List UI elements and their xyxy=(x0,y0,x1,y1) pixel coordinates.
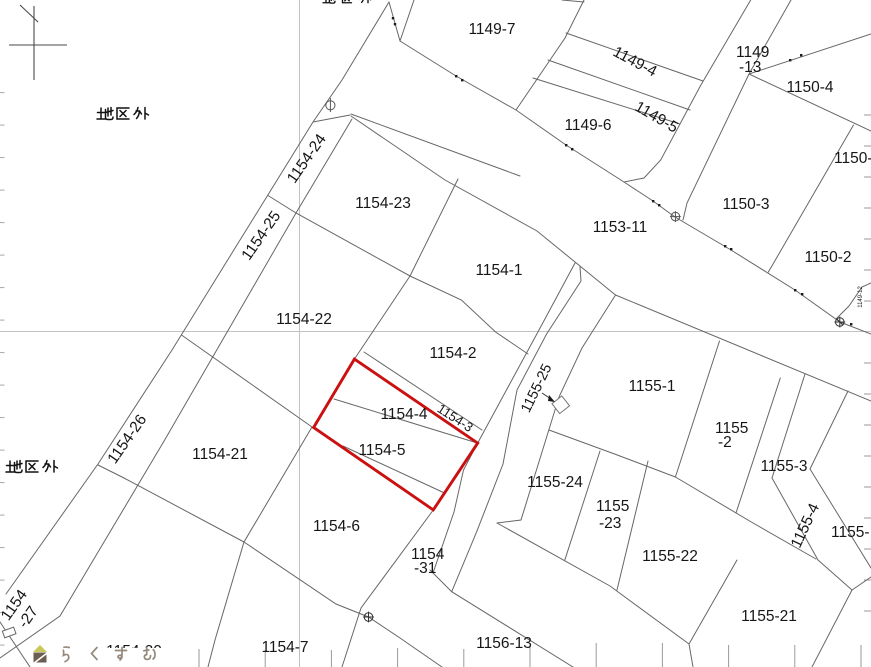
svg-text:1149-12: 1149-12 xyxy=(858,286,864,308)
svg-text:-2: -2 xyxy=(718,434,732,451)
svg-text:1150-3: 1150-3 xyxy=(722,196,769,213)
svg-text:1155-3: 1155-3 xyxy=(760,458,807,475)
svg-text:1155-21: 1155-21 xyxy=(741,608,797,625)
svg-text:1150-: 1150- xyxy=(834,150,871,167)
svg-text:1154-7: 1154-7 xyxy=(261,639,308,656)
svg-text:1154-4: 1154-4 xyxy=(380,406,427,423)
svg-text:-23: -23 xyxy=(599,515,621,532)
svg-text:1155-: 1155- xyxy=(831,524,870,541)
svg-text:1149-6: 1149-6 xyxy=(564,117,611,134)
svg-text:1149-7: 1149-7 xyxy=(468,21,515,38)
svg-text:1154-2: 1154-2 xyxy=(429,345,476,362)
svg-text:1150-2: 1150-2 xyxy=(804,249,851,266)
svg-text:1155-22: 1155-22 xyxy=(642,548,698,565)
svg-text:1154-21: 1154-21 xyxy=(192,446,248,463)
svg-text:-31: -31 xyxy=(414,560,436,577)
svg-text:1154-6: 1154-6 xyxy=(313,518,360,535)
svg-text:1154-1: 1154-1 xyxy=(475,262,522,279)
svg-text:1155-1: 1155-1 xyxy=(628,378,675,395)
svg-text:1150-4: 1150-4 xyxy=(786,79,833,96)
svg-text:-13: -13 xyxy=(739,59,761,76)
svg-text:1153-11: 1153-11 xyxy=(593,219,648,236)
svg-text:1154-22: 1154-22 xyxy=(276,311,332,328)
svg-text:1155: 1155 xyxy=(596,498,629,515)
svg-text:1156-13: 1156-13 xyxy=(476,635,532,652)
svg-text:1154-5: 1154-5 xyxy=(358,442,405,459)
svg-text:1155-24: 1155-24 xyxy=(527,474,583,491)
svg-text:1154-23: 1154-23 xyxy=(355,195,411,212)
